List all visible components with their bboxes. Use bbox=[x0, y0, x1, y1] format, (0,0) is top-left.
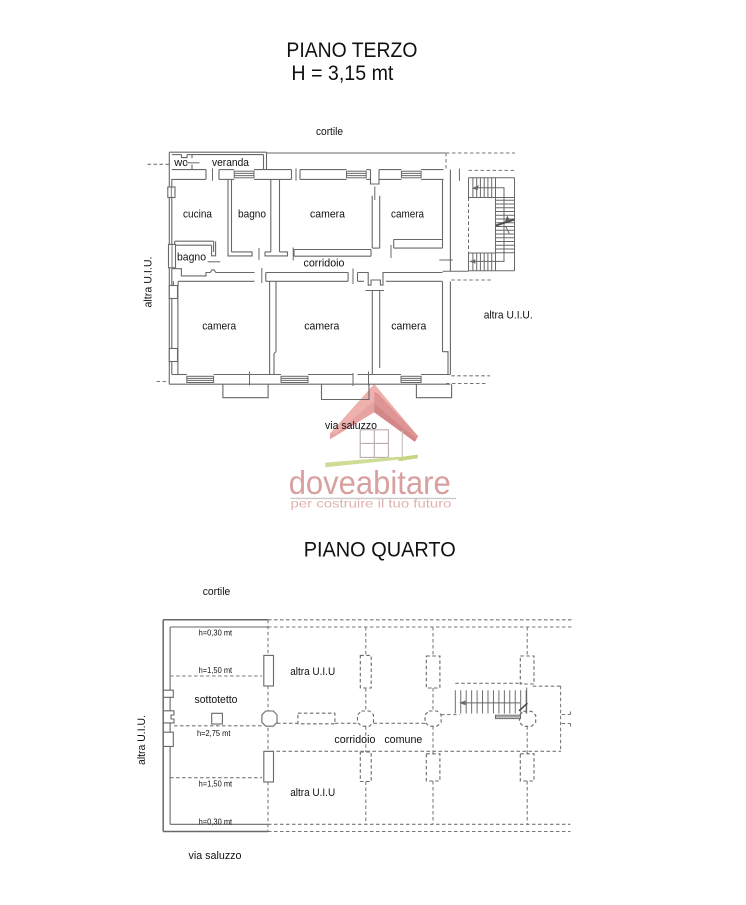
svg-text:camera: camera bbox=[304, 321, 340, 333]
svg-text:camera: camera bbox=[391, 320, 427, 332]
svg-text:altra U.I.U.: altra U.I.U. bbox=[136, 715, 148, 765]
svg-text:camera: camera bbox=[202, 321, 237, 333]
svg-text:altra U.I.U: altra U.I.U bbox=[290, 666, 335, 678]
svg-text:PIANO TERZO: PIANO TERZO bbox=[286, 39, 417, 62]
svg-text:altra U.I.U: altra U.I.U bbox=[290, 787, 335, 799]
svg-text:sottotetto: sottotetto bbox=[195, 694, 238, 706]
svg-text:h=1,50 mt: h=1,50 mt bbox=[199, 665, 233, 675]
svg-text:cortile: cortile bbox=[203, 586, 231, 598]
svg-text:PIANO QUARTO: PIANO QUARTO bbox=[304, 539, 456, 562]
svg-text:corridoio comune: corridoio comune bbox=[334, 734, 422, 746]
svg-text:h=2,75 mt: h=2,75 mt bbox=[197, 728, 231, 738]
svg-text:altra U.I.U.: altra U.I.U. bbox=[484, 310, 533, 322]
svg-text:H = 3,15 mt: H = 3,15 mt bbox=[291, 62, 393, 85]
svg-text:camera: camera bbox=[310, 209, 346, 221]
svg-text:wc: wc bbox=[173, 157, 188, 169]
svg-text:altra U.I.U.: altra U.I.U. bbox=[143, 257, 155, 308]
svg-text:bagno: bagno bbox=[238, 209, 266, 221]
svg-text:camera: camera bbox=[391, 209, 425, 221]
svg-text:veranda: veranda bbox=[212, 157, 250, 169]
svg-text:via saluzzo: via saluzzo bbox=[189, 850, 242, 862]
svg-text:h=1,50 mt: h=1,50 mt bbox=[199, 778, 233, 788]
svg-text:bagno: bagno bbox=[177, 252, 206, 264]
svg-text:cucina: cucina bbox=[183, 209, 213, 221]
svg-text:cortile: cortile bbox=[316, 126, 343, 138]
svg-text:per costruire il tuo futuro: per costruire il tuo futuro bbox=[291, 496, 452, 510]
svg-text:h=0,30 mt: h=0,30 mt bbox=[199, 817, 233, 827]
svg-text:corridoio: corridoio bbox=[304, 258, 345, 270]
svg-text:h=0,30 mt: h=0,30 mt bbox=[199, 628, 233, 638]
svg-text:via saluzzo: via saluzzo bbox=[325, 420, 377, 432]
